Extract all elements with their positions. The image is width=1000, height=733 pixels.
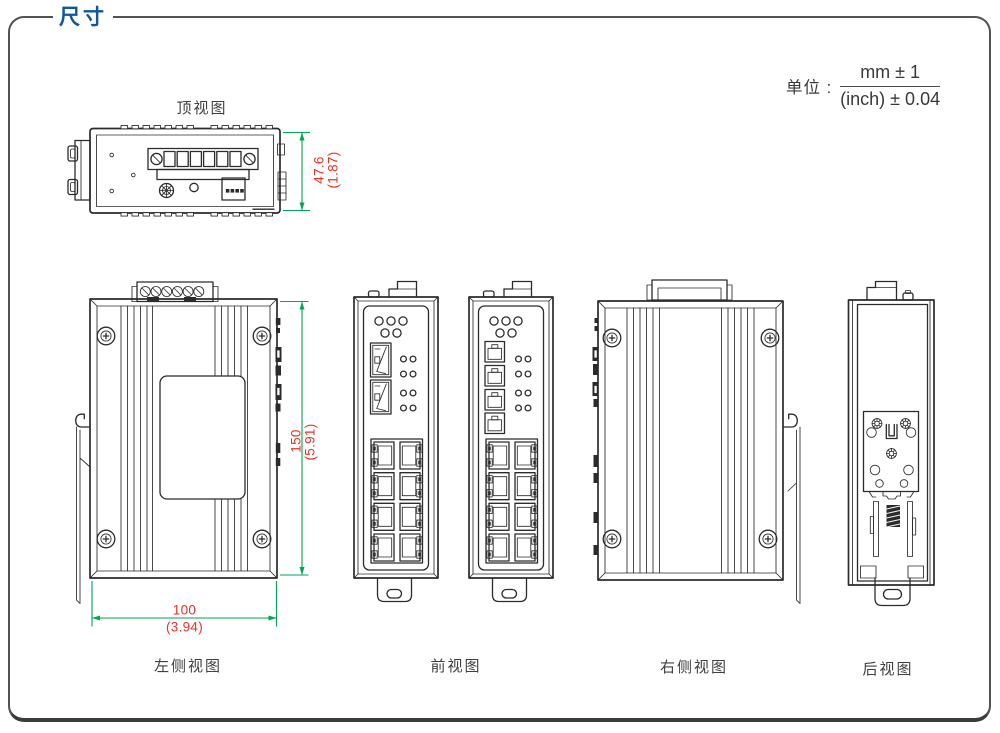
unit-label: 单位 : bbox=[786, 74, 832, 98]
top-view-drawing bbox=[68, 125, 286, 216]
left-side-view-drawing bbox=[76, 282, 282, 604]
unit-note: 单位 : mm ± 1 (inch) ± 0.04 bbox=[786, 62, 940, 110]
front-view-copper-drawing bbox=[469, 282, 553, 602]
unit-fraction: mm ± 1 (inch) ± 0.04 bbox=[840, 62, 940, 110]
rear-view-label: 后视图 bbox=[862, 658, 913, 679]
unit-mm-tolerance: mm ± 1 bbox=[840, 62, 940, 86]
dimension-diagram-page: 尺寸 单位 : mm ± 1 (inch) ± 0.04 顶视图 左侧视图 前视… bbox=[0, 0, 1000, 733]
right-side-view-label: 右侧视图 bbox=[660, 656, 728, 677]
top-view-label: 顶视图 bbox=[176, 97, 227, 118]
front-view-label: 前视图 bbox=[430, 655, 481, 676]
unit-inch-tolerance: (inch) ± 0.04 bbox=[840, 86, 940, 111]
depth-dimension-mm: 47.6 bbox=[312, 156, 327, 183]
depth-dimension-inch: (1.87) bbox=[325, 151, 340, 188]
width-dimension-inch: (3.94) bbox=[166, 619, 203, 634]
height-dimension-inch: (5.91) bbox=[302, 423, 317, 460]
left-side-view-label: 左侧视图 bbox=[154, 655, 222, 676]
page-title: 尺寸 bbox=[53, 1, 113, 31]
right-side-view-drawing bbox=[593, 280, 801, 604]
height-dimension-mm: 150 bbox=[289, 429, 304, 452]
width-dimension-mm: 100 bbox=[173, 603, 196, 618]
front-view-fiber-drawing bbox=[354, 282, 438, 602]
rear-view-drawing bbox=[849, 282, 935, 606]
